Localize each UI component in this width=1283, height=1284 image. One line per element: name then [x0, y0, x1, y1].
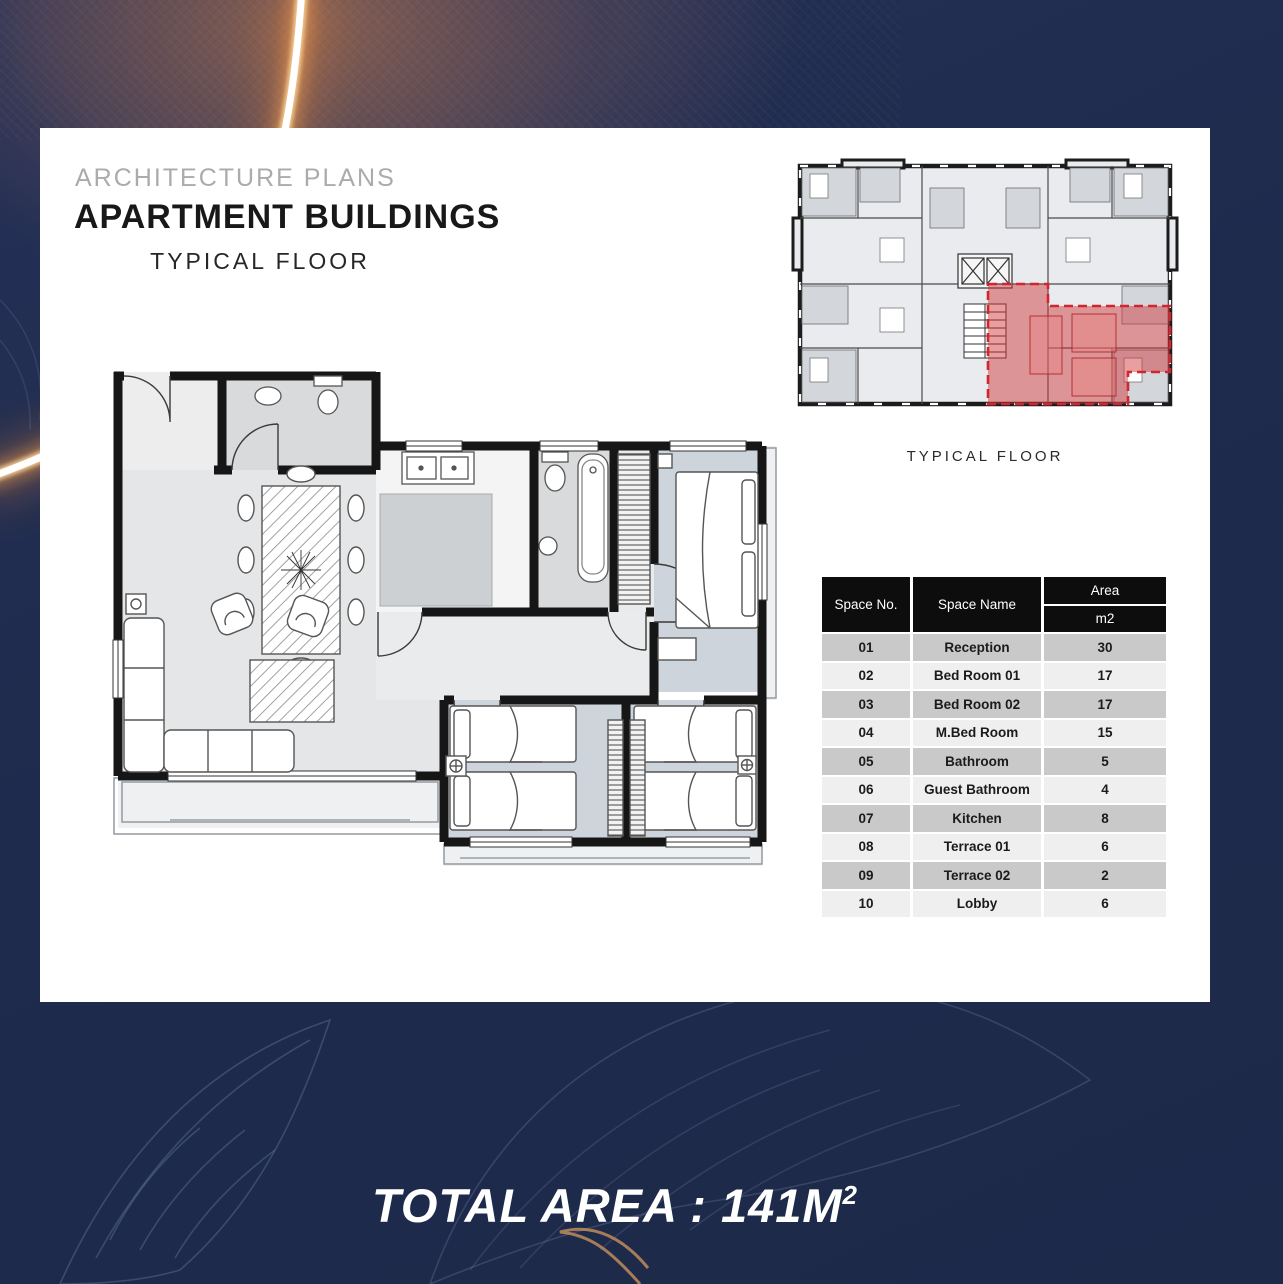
table-cell-area: 30: [1044, 634, 1166, 661]
table-cell-name: Kitchen: [913, 805, 1041, 832]
table-cell-name: Guest Bathroom: [913, 777, 1041, 804]
wardrobe-icon: [630, 720, 645, 836]
wardrobe-icon: [618, 454, 650, 604]
overview-caption: TYPICAL FLOOR: [790, 448, 1180, 465]
space-table: Space No. Space Name Area m2 01Reception…: [822, 577, 1166, 917]
table-cell-area: 17: [1044, 663, 1166, 690]
wardrobe-icon: [608, 720, 623, 836]
table-cell-no: 04: [822, 720, 910, 747]
table-cell-area: 4: [1044, 777, 1166, 804]
table-cell-no: 03: [822, 691, 910, 718]
table-cell-area: 8: [1044, 805, 1166, 832]
table-cell-no: 07: [822, 805, 910, 832]
table-header-space-no: Space No.: [822, 577, 910, 632]
toilet-icon: [542, 452, 568, 491]
drain-icon: [738, 756, 756, 774]
table-cell-name: Terrace 02: [913, 862, 1041, 889]
coffee-table-icon: [250, 660, 334, 722]
table-cell-area: 17: [1044, 691, 1166, 718]
table-cell-no: 10: [822, 891, 910, 918]
table-cell-name: Bed Room 01: [913, 663, 1041, 690]
page-title: APARTMENT BUILDINGS: [74, 198, 500, 237]
drain-icon: [446, 756, 466, 776]
table-cell-no: 02: [822, 663, 910, 690]
kitchen-sink-icon: [402, 452, 474, 484]
table-cell-name: Bed Room 02: [913, 691, 1041, 718]
sink-icon: [255, 387, 281, 405]
table-cell-area: 15: [1044, 720, 1166, 747]
main-floor-plan: [110, 368, 778, 868]
table-cell-name: Lobby: [913, 891, 1041, 918]
table-cell-no: 06: [822, 777, 910, 804]
bathtub-icon: [578, 454, 608, 582]
total-area-label: TOTAL AREA : 141M2: [372, 1178, 858, 1233]
slide-background: { "slide": { "eyebrow": "ARCHITECTURE PL…: [0, 0, 1283, 1284]
total-area-superscript: 2: [843, 1180, 858, 1210]
table-cell-no: 05: [822, 748, 910, 775]
table-cell-no: 08: [822, 834, 910, 861]
table-cell-no: 01: [822, 634, 910, 661]
page-subtitle: TYPICAL FLOOR: [110, 248, 410, 275]
table-cell-name: Bathroom: [913, 748, 1041, 775]
table-cell-area: 6: [1044, 834, 1166, 861]
table-cell-name: M.Bed Room: [913, 720, 1041, 747]
content-card: ARCHITECTURE PLANS APARTMENT BUILDINGS T…: [40, 128, 1210, 1002]
table-header-space-name: Space Name: [913, 577, 1041, 632]
eyebrow-label: ARCHITECTURE PLANS: [75, 164, 396, 193]
table-cell-area: 6: [1044, 891, 1166, 918]
table-cell-area: 2: [1044, 862, 1166, 889]
table-cell-no: 09: [822, 862, 910, 889]
overview-floor-plan: [790, 158, 1180, 430]
table-header-area: Area: [1044, 577, 1166, 604]
table-cell-name: Reception: [913, 634, 1041, 661]
sink-icon: [539, 537, 557, 555]
table-cell-area: 5: [1044, 748, 1166, 775]
table-cell-name: Terrace 01: [913, 834, 1041, 861]
total-area-text: TOTAL AREA : 141M: [372, 1179, 843, 1232]
table-header-area-unit: m2: [1044, 606, 1166, 633]
